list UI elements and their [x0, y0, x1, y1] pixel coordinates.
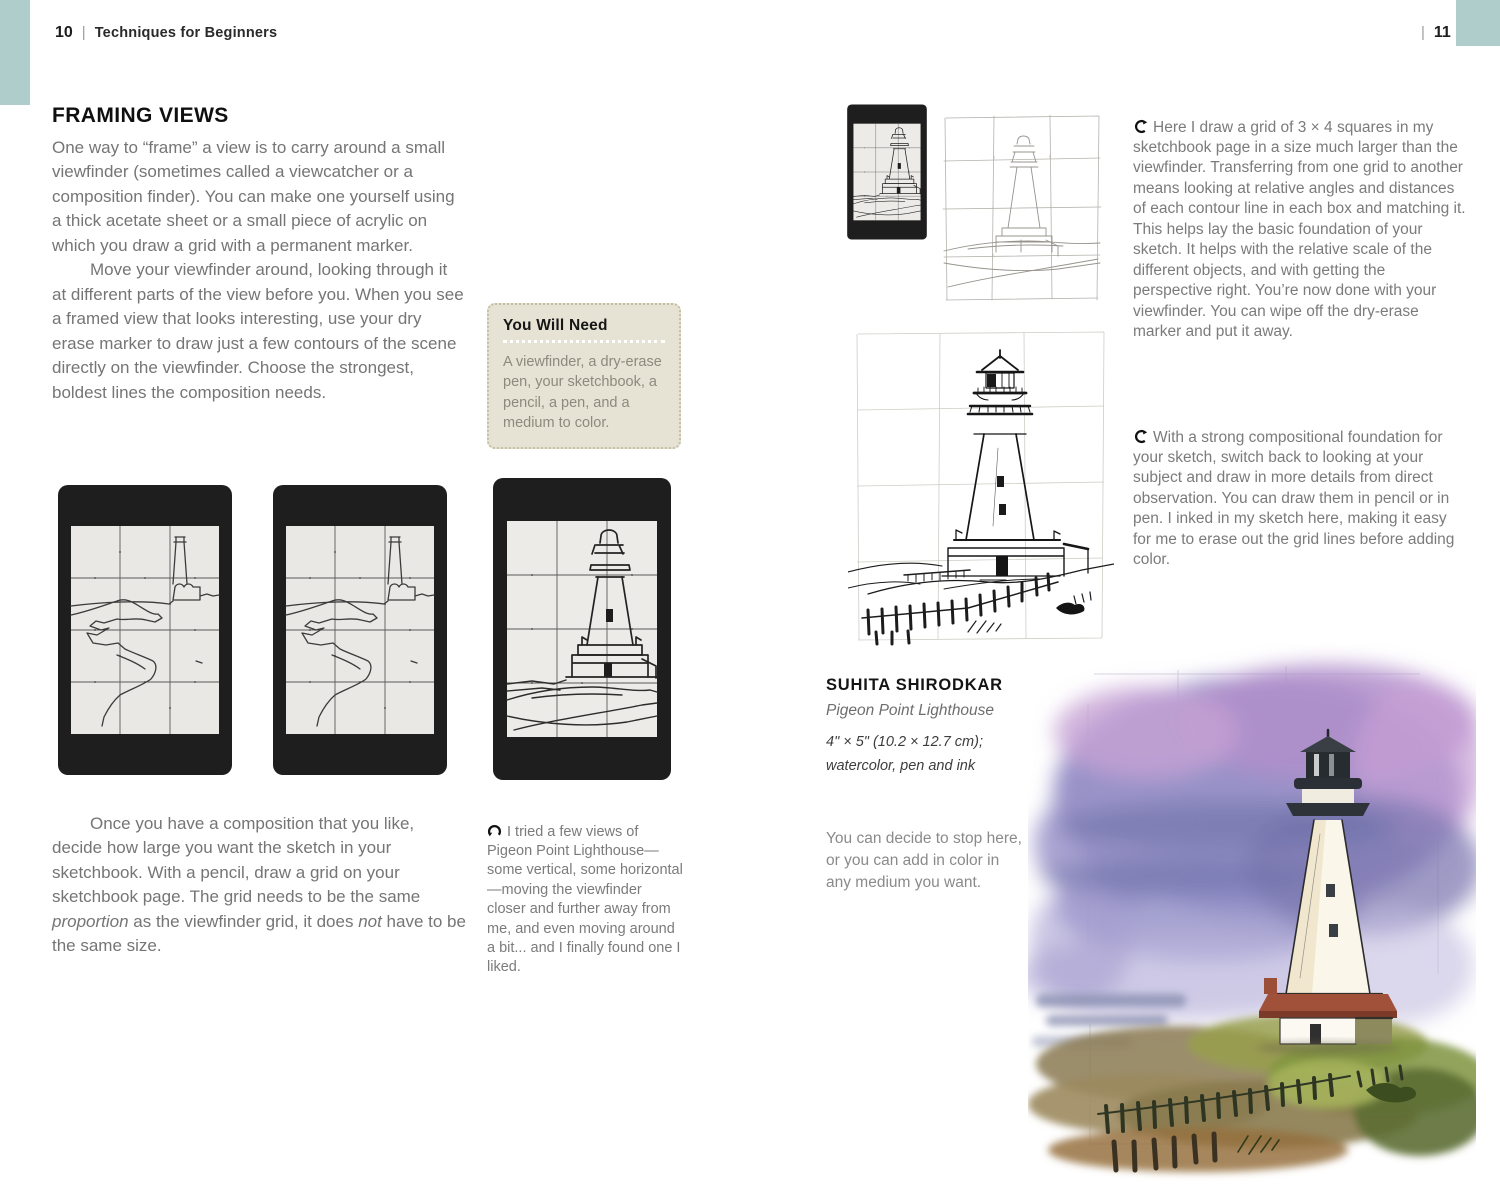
- teal-corner-accent-left: [0, 0, 30, 105]
- curved-arrow-left-icon: [1133, 429, 1148, 444]
- teal-corner-accent-right: [1456, 0, 1500, 46]
- viewfinder-sketch-1: [57, 484, 233, 776]
- dotted-separator: [503, 340, 665, 343]
- ink-details-caption: With a strong compositional foundation f…: [1133, 428, 1467, 571]
- viewfinder-paragraph: Move your viewfinder around, looking thr…: [52, 258, 466, 405]
- ink-details-caption-text: With a strong compositional foundation f…: [1133, 429, 1454, 569]
- intro-paragraph: One way to “frame” a view is to carry ar…: [52, 136, 466, 258]
- grid-transfer-caption: Here I draw a grid of 3 × 4 squares in m…: [1133, 118, 1467, 343]
- running-head-right: | 11: [1421, 24, 1451, 42]
- you-will-need-text: A viewfinder, a dry-erase pen, your sket…: [503, 352, 665, 433]
- italic-not: not: [358, 912, 382, 931]
- viewfinder-thumbnail: [843, 104, 931, 240]
- grid-paragraph: Once you have a composition that you lik…: [52, 812, 466, 959]
- artwork-size: 4" × 5" (10.2 × 12.7 cm);: [826, 732, 1026, 754]
- grid-transfer-caption-text: Here I draw a grid of 3 × 4 squares in m…: [1133, 119, 1466, 341]
- page-number-left: 10: [55, 24, 73, 42]
- running-head-left: 10 | Techniques for Beginners: [55, 24, 277, 42]
- ink-sketch: [848, 326, 1114, 646]
- watercolor-painting: [1028, 644, 1476, 1192]
- italic-proportion: proportion: [52, 912, 129, 931]
- pencil-grid-sketch: [938, 110, 1106, 306]
- artist-name: SUHITA SHIRODKAR: [826, 676, 1026, 695]
- closing-note: You can decide to stop here, or you can …: [826, 828, 1024, 895]
- artwork-title: Pigeon Point Lighthouse: [826, 702, 1026, 720]
- viewfinder-sketch-3: [492, 477, 672, 781]
- curved-arrow-left-icon: [1133, 119, 1148, 134]
- viewfinder-sketch-2: [272, 484, 448, 776]
- page-number-right: 11: [1434, 24, 1451, 42]
- artwork-medium: watercolor, pen and ink: [826, 756, 1026, 778]
- you-will-need-box: You Will Need A viewfinder, a dry-erase …: [487, 303, 681, 449]
- grid-paragraph-text: Once you have a composition that you lik…: [52, 814, 420, 906]
- viewfinder-caption-text: I tried a few views of Pigeon Point Ligh…: [487, 824, 683, 976]
- curved-arrow-up-icon: [487, 823, 502, 838]
- you-will-need-title: You Will Need: [503, 317, 665, 335]
- viewfinder-caption: I tried a few views of Pigeon Point Ligh…: [487, 823, 683, 978]
- left-text-column: One way to “frame” a view is to carry ar…: [52, 136, 466, 405]
- section-heading: FRAMING VIEWS: [52, 104, 229, 128]
- grid-paragraph-text: as the viewfinder grid, it does: [129, 912, 359, 931]
- header-divider-right: |: [1421, 24, 1425, 41]
- chapter-title: Techniques for Beginners: [95, 25, 278, 41]
- artist-credit: SUHITA SHIRODKAR Pigeon Point Lighthouse…: [826, 676, 1026, 780]
- book-spread: 10 | Techniques for Beginners | 11 FRAMI…: [0, 0, 1500, 1200]
- header-divider: |: [82, 24, 86, 41]
- left-text-column-2: Once you have a composition that you lik…: [52, 812, 466, 959]
